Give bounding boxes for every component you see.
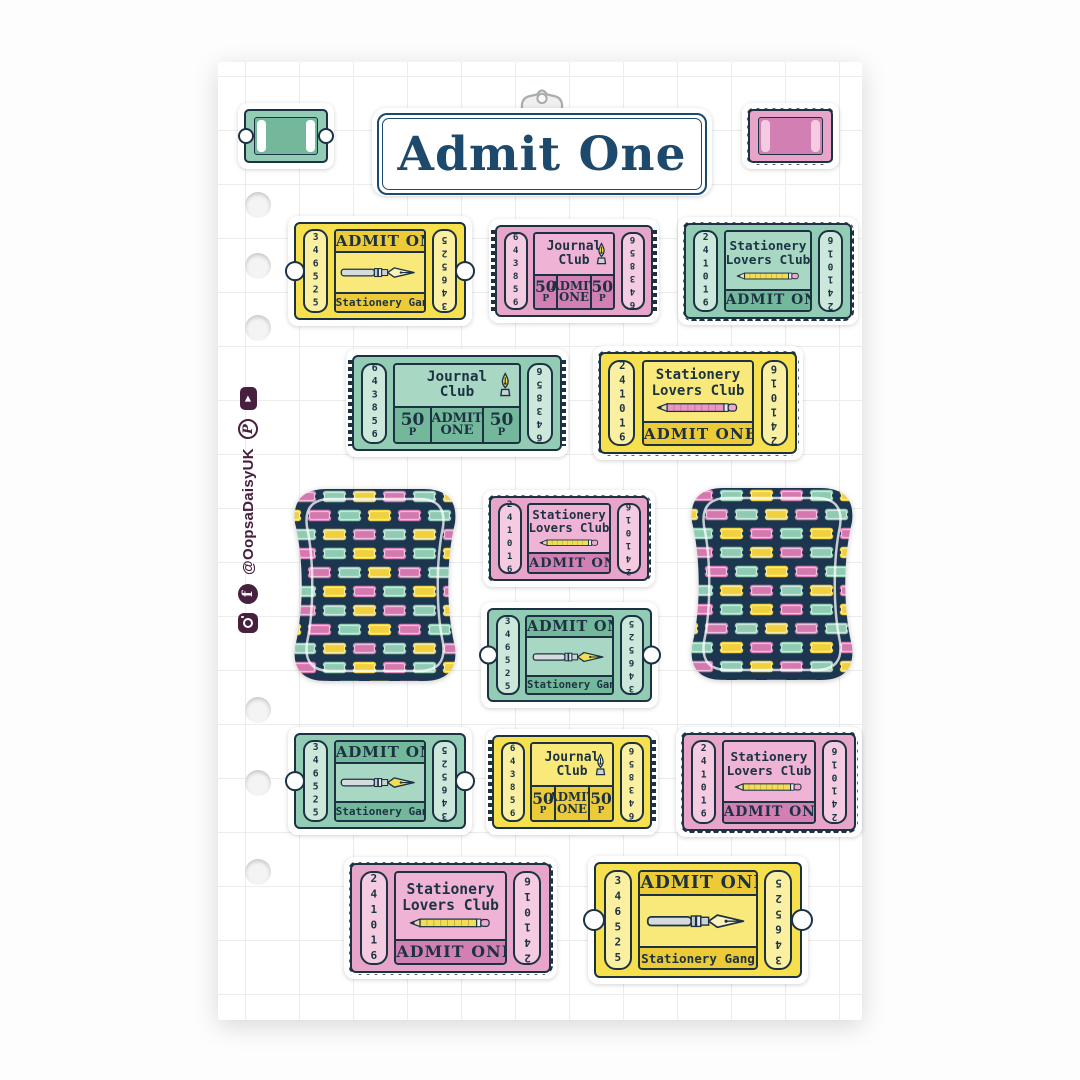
punch-hole (245, 192, 271, 218)
fountain-pen-icon (640, 896, 755, 946)
serial-strip: 241016 (761, 360, 788, 447)
sticker-admit-gang-yellow-large: 346525 ADMIT ONE Stationery Gang 346525 (588, 856, 808, 984)
ticket-side-bar (811, 120, 820, 152)
ticket-side-bar (761, 120, 770, 152)
ticket-stationery-lovers-club: 241016 StationeryLovers Club ADMIT ONE 2… (489, 496, 649, 581)
punch-hole (245, 315, 271, 341)
ticket-notch (318, 128, 334, 144)
ticket-journal-club: 643856 JournalClub 50P ADMITONE 50P 6438… (352, 355, 562, 451)
ticket-journal-club: 643856 JournalClub 50P ADMITONE 50P 6438… (495, 225, 653, 317)
sticker-journal-club-teal: 643856 JournalClub 50P ADMITONE 50P 6438… (346, 349, 568, 457)
ticket-side-bar (306, 120, 315, 152)
sticker-lovers-club-pink: 241016 StationeryLovers Club ADMIT ONE 2… (676, 727, 862, 837)
pencil-icon (539, 537, 600, 549)
lovers-club-panel: StationeryLovers Club (396, 873, 504, 939)
stationery-gang-label: Stationery Gang (527, 675, 612, 693)
ticket-admit-one-stationery-gang: 346525 ADMIT ONE Stationery Gang 346525 (487, 608, 652, 702)
admit-one-label: ADMIT ONE (640, 872, 755, 896)
sign-title: Admit One (397, 127, 686, 182)
serial-strip: 241016 (691, 740, 716, 824)
admit-one-sign: Admit One (377, 113, 707, 195)
social-strip: f @OopsaDaisyUK P ▶ (233, 365, 263, 655)
price-cell: 50P (484, 408, 519, 441)
serial-strip: 643856 (620, 742, 644, 822)
journal-club-panel: JournalClub (535, 234, 613, 276)
sticker-ticket-pattern (686, 486, 858, 682)
admit-one-cell: ADMITONE (556, 276, 591, 308)
serial-strip: 241016 (498, 503, 522, 574)
pencil-icon (409, 916, 492, 930)
serial-strip: 346525 (432, 740, 457, 822)
serial-strip: 346525 (764, 870, 792, 970)
stationery-gang-label: Stationery Gang (336, 292, 425, 311)
ticket-admit-one-stationery-gang: 346525 ADMIT ONE Stationery Gang 346525 (594, 862, 802, 978)
product-image: f @OopsaDaisyUK P ▶ Admit One (0, 0, 1080, 1080)
ticket-stationery-lovers-club: 241016 StationeryLovers Club ADMIT ONE 2… (350, 863, 551, 973)
pinterest-icon: P (238, 419, 258, 439)
ticket-notch (791, 909, 813, 931)
ticket-admit-one-stationery-gang: 346525 ADMIT ONE Stationery Gang 346525 (294, 222, 466, 320)
sticker-lovers-club-pink: 241016 StationeryLovers Club ADMIT ONE 2… (483, 490, 655, 587)
admit-one-cell: ADMITONE (430, 408, 484, 441)
admit-one-label: ADMIT ONE (336, 742, 425, 764)
sticker-lovers-club-teal: 241016 StationeryLovers Club ADMIT ONE 2… (678, 217, 858, 325)
pencil-icon (736, 270, 800, 282)
serial-strip: 241016 (693, 230, 718, 312)
admit-one-label: ADMIT ONE (396, 939, 504, 963)
pen-nib-icon (497, 372, 514, 398)
sticker-lovers-club-yellow: 241016 StationeryLovers Club ADMIT ONE 2… (593, 346, 803, 460)
ticket-notch (642, 646, 661, 665)
fountain-pen-icon (336, 764, 425, 800)
serial-strip: 241016 (617, 503, 641, 574)
serial-strip: 241016 (822, 740, 847, 824)
sticker-journal-club-pink: 643856 JournalClub 50P ADMITONE 50P 6438… (489, 219, 659, 323)
serial-strip: 241016 (608, 360, 635, 447)
ticket-notch (455, 771, 475, 791)
serial-strip: 643856 (501, 742, 525, 822)
price-cell: 50P (592, 276, 613, 308)
ticket-stationery-lovers-club: 241016 StationeryLovers Club ADMIT ONE 2… (682, 733, 856, 831)
admit-one-cell: ADMITONE (554, 787, 590, 820)
admit-one-label: ADMIT ONE (336, 231, 425, 253)
journal-club-panel: JournalClub (395, 365, 519, 409)
admit-one-label: ADMIT ONE (527, 617, 612, 638)
ticket-admit-one-stationery-gang: 346525 ADMIT ONE Stationery Gang 346525 (294, 733, 466, 829)
pencil-icon (734, 781, 803, 793)
ticket-journal-club: 643856 JournalClub 50P ADMITONE 50P 6438… (492, 735, 652, 829)
social-sidebar: f @OopsaDaisyUK P ▶ (230, 365, 266, 655)
facebook-icon: f (238, 584, 258, 604)
serial-strip: 346525 (303, 229, 328, 313)
price-cell: 50P (590, 787, 612, 820)
sticker-lovers-club-pink-large: 241016 StationeryLovers Club ADMIT ONE 2… (344, 857, 557, 979)
ticket-notch (285, 261, 305, 281)
lovers-club-panel: StationeryLovers Club (724, 742, 815, 801)
serial-strip: 643856 (361, 363, 387, 444)
admit-one-label: ADMIT ONE (724, 801, 815, 822)
lovers-club-panel: StationeryLovers Club (726, 232, 811, 289)
pen-nib-icon (593, 753, 608, 777)
instagram-icon (238, 613, 258, 633)
lovers-club-panel: StationeryLovers Club (529, 505, 609, 552)
sticker-journal-club-yellow: 643856 JournalClub 50P ADMITONE 50P 6438… (486, 729, 658, 835)
mini-blank-ticket (748, 109, 833, 163)
price-cell: 50P (395, 408, 430, 441)
ticket-notch (285, 771, 305, 791)
serial-strip: 346525 (604, 870, 632, 970)
sticker-mini-ticket-teal (238, 103, 334, 169)
ticket-notch (455, 261, 475, 281)
serial-strip: 643856 (527, 363, 553, 444)
fountain-pen-icon (336, 253, 425, 291)
journal-club-panel: JournalClub (532, 744, 612, 787)
ticket-stationery-lovers-club: 241016 StationeryLovers Club ADMIT ONE 2… (599, 352, 797, 454)
serial-strip: 346525 (432, 229, 457, 313)
youtube-icon: ▶ (240, 387, 257, 410)
ticket-side-bar (257, 120, 266, 152)
pencil-icon (656, 401, 739, 414)
sticker-ticket-pattern (289, 487, 461, 683)
sticker-admit-gang-yellow: 346525 ADMIT ONE Stationery Gang 346525 (288, 216, 472, 326)
punch-hole (245, 697, 271, 723)
admit-one-label: ADMIT ONE (726, 289, 811, 310)
ticket-notch (238, 128, 254, 144)
sticker-admit-one-sign: Admit One (372, 108, 712, 196)
serial-strip: 346525 (303, 740, 328, 822)
ticket-notch (479, 646, 498, 665)
lovers-club-panel: StationeryLovers Club (644, 362, 752, 421)
sticker-admit-gang-teal: 346525 ADMIT ONE Stationery Gang 346525 (481, 602, 658, 708)
mini-blank-ticket (244, 109, 328, 163)
ticket-stationery-lovers-club: 241016 StationeryLovers Club ADMIT ONE 2… (684, 223, 852, 319)
admit-one-label: ADMIT ONE (529, 552, 609, 572)
serial-strip: 643856 (504, 232, 528, 310)
serial-strip: 241016 (513, 871, 541, 965)
admit-one-label: ADMIT ONE (644, 421, 752, 444)
punch-hole (245, 770, 271, 796)
punch-hole (245, 253, 271, 279)
stationery-gang-label: Stationery Gang (336, 801, 425, 820)
serial-strip: 346525 (496, 615, 520, 695)
ticket-notch (583, 909, 605, 931)
serial-strip: 241016 (360, 871, 388, 965)
pen-nib-icon (594, 242, 609, 266)
serial-strip: 643856 (621, 232, 645, 310)
sticker-mini-ticket-pink (742, 103, 839, 169)
punch-hole (245, 859, 271, 885)
sticker-admit-gang-teal: 346525 ADMIT ONE Stationery Gang 346525 (288, 727, 472, 835)
serial-strip: 241016 (818, 230, 843, 312)
ticket-pattern-graphic (289, 487, 461, 683)
ticket-pattern-graphic (686, 486, 858, 682)
serial-strip: 346525 (620, 615, 644, 695)
stationery-gang-label: Stationery Gang (640, 946, 755, 968)
fountain-pen-icon (527, 638, 612, 675)
sticker-sheet-page: f @OopsaDaisyUK P ▶ Admit One (218, 62, 862, 1020)
brand-handle: @OopsaDaisyUK (240, 448, 257, 575)
